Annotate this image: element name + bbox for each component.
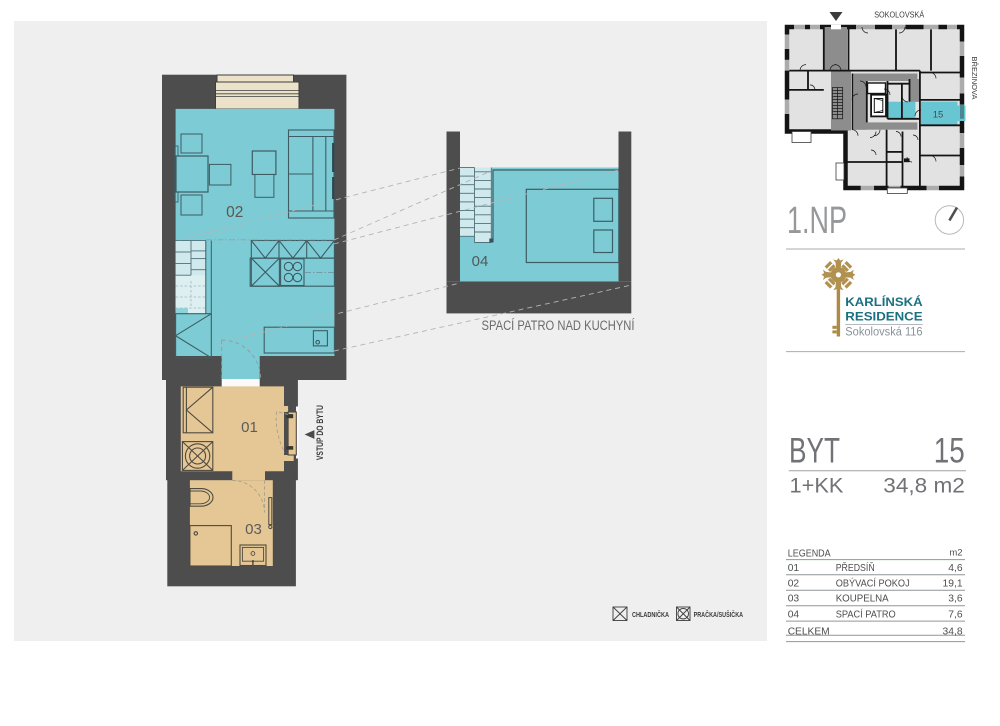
svg-text:03: 03 bbox=[788, 594, 800, 605]
svg-text:01: 01 bbox=[241, 419, 258, 436]
svg-text:03: 03 bbox=[245, 521, 262, 538]
svg-text:SPACÍ PATRO: SPACÍ PATRO bbox=[836, 608, 896, 621]
svg-text:m2: m2 bbox=[949, 548, 962, 559]
svg-text:02: 02 bbox=[226, 204, 243, 221]
svg-text:KARLÍNSKÁ: KARLÍNSKÁ bbox=[845, 296, 922, 309]
svg-text:7,6: 7,6 bbox=[948, 610, 963, 621]
svg-text:Sokolovská 116: Sokolovská 116 bbox=[845, 326, 922, 338]
svg-text:01: 01 bbox=[788, 563, 800, 574]
svg-text:PRAČKA/SUŠIČKA: PRAČKA/SUŠIČKA bbox=[694, 610, 744, 619]
svg-text:02: 02 bbox=[788, 578, 800, 589]
svg-text:34,8: 34,8 bbox=[943, 626, 963, 637]
svg-text:PŘEDSÍŇ: PŘEDSÍŇ bbox=[836, 561, 875, 574]
svg-text:SPACÍ PATRO NAD KUCHYNÍ: SPACÍ PATRO NAD KUCHYNÍ bbox=[482, 318, 635, 333]
svg-text:CHLADNIČKA: CHLADNIČKA bbox=[632, 610, 669, 619]
svg-text:OBÝVACÍ POKOJ: OBÝVACÍ POKOJ bbox=[836, 576, 910, 589]
svg-text:3,6: 3,6 bbox=[948, 594, 963, 605]
svg-text:KOUPELNA: KOUPELNA bbox=[836, 594, 889, 605]
svg-text:15: 15 bbox=[934, 432, 965, 471]
svg-text:4,6: 4,6 bbox=[948, 563, 963, 574]
svg-text:34,8 m2: 34,8 m2 bbox=[883, 473, 965, 497]
svg-text:LEGENDA: LEGENDA bbox=[788, 549, 831, 560]
svg-text:04: 04 bbox=[788, 610, 800, 621]
svg-text:SOKOLOVSKÁ: SOKOLOVSKÁ bbox=[874, 11, 925, 20]
svg-text:04: 04 bbox=[472, 253, 489, 270]
svg-text:15: 15 bbox=[933, 110, 944, 121]
svg-text:CELKEM: CELKEM bbox=[788, 626, 830, 637]
svg-text:1.NP: 1.NP bbox=[787, 200, 847, 242]
svg-text:BŘEZINOVA: BŘEZINOVA bbox=[970, 57, 979, 100]
svg-text:1+KK: 1+KK bbox=[790, 473, 845, 497]
svg-text:VSTUP DO BYTU: VSTUP DO BYTU bbox=[315, 405, 325, 460]
svg-text:BYT: BYT bbox=[789, 432, 840, 471]
svg-text:RESIDENCE: RESIDENCE bbox=[845, 311, 923, 323]
svg-text:19,1: 19,1 bbox=[943, 578, 963, 589]
